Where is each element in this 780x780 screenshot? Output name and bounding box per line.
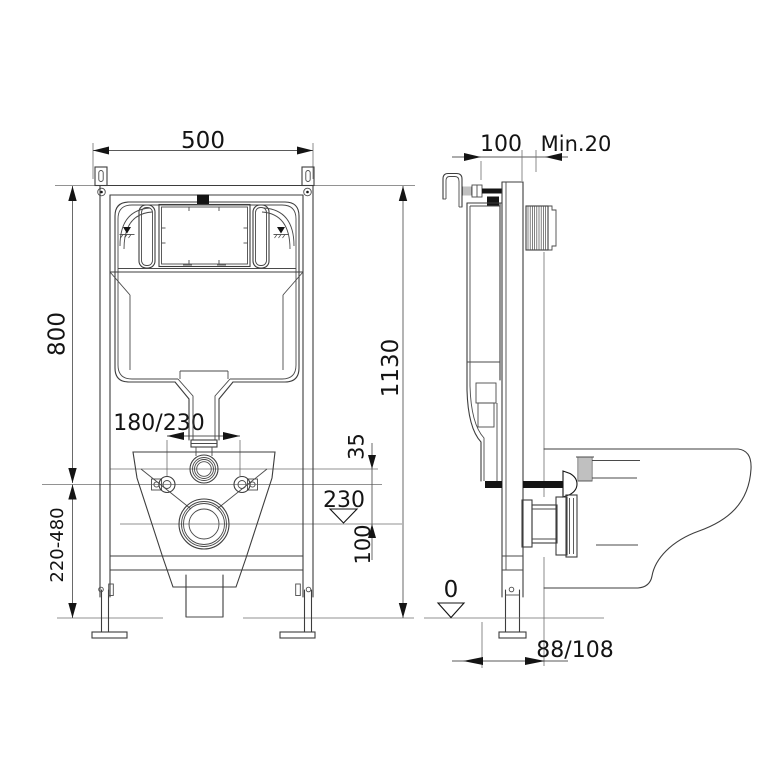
datum-triangle-icon — [330, 509, 357, 523]
access-window — [159, 205, 250, 267]
dimension-total-height-1130: 1130 — [378, 186, 407, 618]
arrowhead-icon — [463, 657, 483, 665]
mounting-slot — [99, 171, 103, 182]
front-view: 500 800 220-480 1130 — [42, 128, 415, 638]
dim-frame-height-label: 800 — [45, 312, 71, 356]
fixing-rod-side — [485, 471, 577, 497]
mounting-slot — [306, 171, 310, 182]
drain-connector — [522, 495, 577, 557]
arrowhead-icon — [68, 468, 76, 483]
flush-valve-side — [476, 383, 496, 403]
arrowhead-icon — [68, 603, 76, 618]
side-dim-depth-label: 100 — [480, 132, 522, 157]
adjustable-foot-right — [280, 584, 315, 638]
dim-bolt-spacing-label: 180/230 — [113, 411, 204, 436]
flush-plate-shaft — [526, 206, 556, 250]
arrowhead-icon — [68, 186, 76, 201]
rod-cap — [563, 471, 577, 497]
frame-side-profile — [499, 182, 526, 638]
arrowhead-icon — [68, 485, 76, 500]
access-window-ticks — [162, 207, 248, 265]
mounting-tab — [302, 167, 314, 186]
arrowhead-icon — [368, 455, 376, 469]
dimension-frame-height-800: 800 — [45, 186, 77, 483]
dim-35-label: 35 — [345, 433, 369, 460]
dimension-drain-offset: 88/108 — [452, 622, 614, 668]
mounting-frame — [92, 167, 315, 638]
dimension-depth-minwall: 100 Min.20 — [452, 132, 611, 181]
dim-100-label: 100 — [351, 524, 375, 564]
dimension-leg-range: 220-480 — [47, 485, 77, 619]
side-dim-min-wall-label: Min.20 — [541, 132, 612, 156]
adjustable-foot-side — [499, 587, 526, 638]
arrowhead-icon — [297, 147, 313, 155]
side-view: 100 Min.20 — [424, 132, 751, 668]
arrowhead-icon — [223, 432, 240, 440]
mounting-tab — [95, 167, 107, 186]
datum-triangle-icon — [438, 603, 464, 618]
side-dim-drain-offset-label: 88/108 — [536, 638, 613, 663]
dim-leg-range-label: 220-480 — [47, 507, 68, 582]
floor-datum: 0 — [424, 577, 604, 618]
arrowhead-icon — [464, 153, 481, 161]
arrowhead-icon — [399, 603, 407, 618]
level-marker-230: 230 — [323, 488, 365, 523]
cistern-cap — [197, 195, 209, 205]
dimension-width-500: 500 — [93, 128, 313, 179]
technical-drawing: 500 800 220-480 1130 — [0, 0, 780, 780]
drawing-canvas: 500 800 220-480 1130 — [0, 0, 780, 780]
arrowhead-icon — [399, 186, 407, 201]
toilet-bowl-front — [133, 452, 275, 617]
drain-pipe-front — [186, 575, 223, 617]
dim-width-label: 500 — [181, 128, 225, 154]
wall-bracket — [443, 174, 462, 208]
toilet-bowl-side — [485, 449, 751, 588]
water-inlet-side — [576, 457, 640, 481]
cistern-side — [467, 203, 502, 481]
arrowhead-icon — [93, 147, 109, 155]
dimension-bolt-spacing: 180/230 — [113, 411, 240, 476]
level-0-label: 0 — [444, 577, 459, 603]
dim-total-height-label: 1130 — [378, 339, 404, 398]
